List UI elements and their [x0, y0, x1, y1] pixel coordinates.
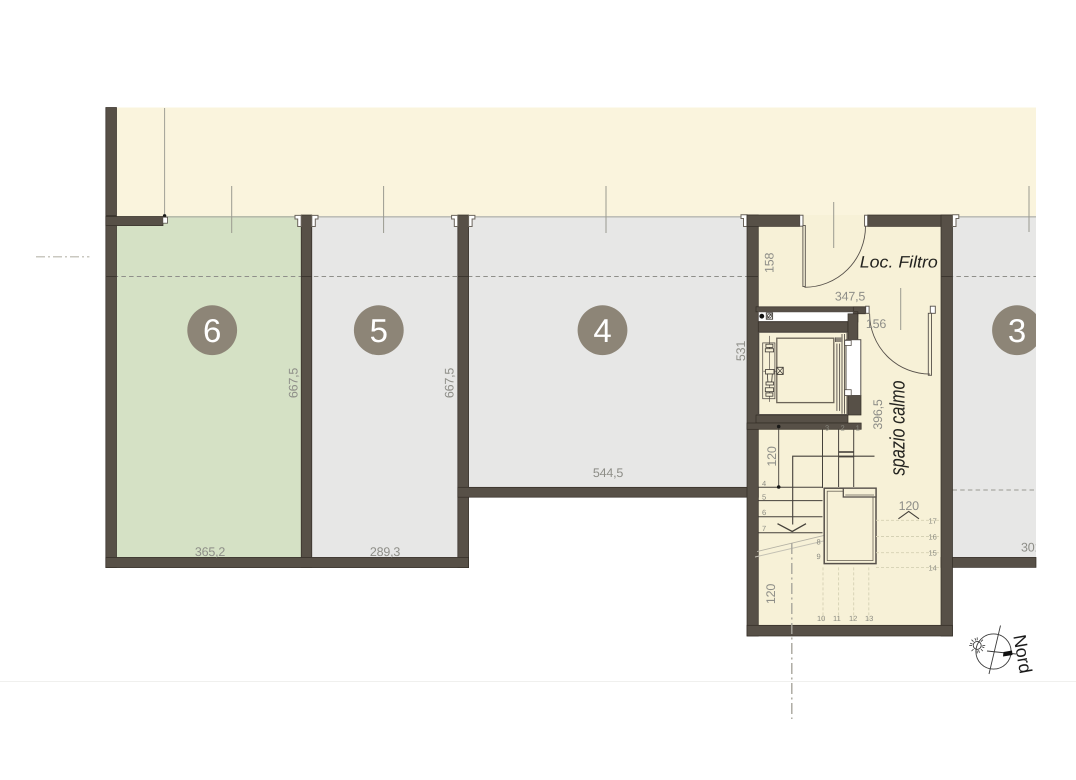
svg-text:1: 1	[856, 424, 860, 433]
svg-text:12: 12	[849, 614, 857, 623]
svg-text:6: 6	[203, 312, 221, 349]
svg-text:15: 15	[929, 549, 937, 558]
svg-text:14: 14	[929, 564, 937, 573]
svg-text:4: 4	[593, 312, 611, 349]
svg-text:spazio calmo: spazio calmo	[887, 380, 910, 475]
svg-text:2: 2	[841, 424, 845, 433]
svg-text:365,2: 365,2	[195, 545, 226, 559]
svg-text:396,5: 396,5	[871, 399, 885, 430]
svg-text:16: 16	[929, 533, 937, 542]
svg-text:3: 3	[825, 424, 829, 433]
svg-text:347,5: 347,5	[835, 290, 866, 304]
svg-text:10: 10	[817, 614, 825, 623]
svg-text:13: 13	[865, 614, 873, 623]
svg-text:9: 9	[817, 552, 821, 561]
svg-text:4: 4	[762, 479, 766, 488]
svg-text:11: 11	[833, 614, 841, 623]
svg-text:289,3: 289,3	[370, 545, 401, 559]
svg-text:7: 7	[762, 524, 766, 533]
svg-text:120: 120	[764, 584, 778, 605]
svg-text:667,5: 667,5	[287, 368, 301, 399]
svg-text:544,5: 544,5	[593, 466, 624, 480]
svg-text:6: 6	[762, 508, 766, 517]
svg-text:158: 158	[763, 252, 777, 273]
svg-text:5: 5	[370, 312, 388, 349]
svg-text:17: 17	[929, 517, 937, 526]
svg-text:120: 120	[899, 499, 920, 513]
svg-text:8: 8	[817, 538, 821, 547]
svg-text:120: 120	[765, 446, 779, 467]
svg-text:531: 531	[734, 341, 748, 362]
svg-text:667,5: 667,5	[442, 368, 456, 399]
svg-text:3: 3	[1008, 312, 1026, 349]
svg-text:156: 156	[866, 317, 887, 331]
svg-text:Loc. Filtro: Loc. Filtro	[860, 254, 938, 272]
svg-text:5: 5	[762, 492, 766, 501]
